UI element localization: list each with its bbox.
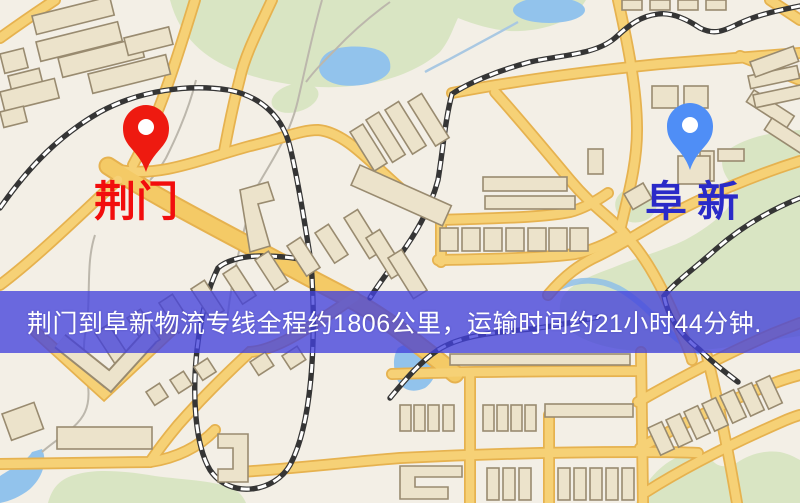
route-info-text: 荆门到阜新物流专线全程约1806公里，运输时间约21小时44分钟. — [27, 304, 762, 340]
route-info-banner: 荆门到阜新物流专线全程约1806公里，运输时间约21小时44分钟. — [0, 291, 800, 353]
origin-label: 荆门 — [94, 178, 178, 225]
map-canvas[interactable]: 荆门 阜新 — [0, 0, 800, 503]
logistics-route-map: 荆门 阜新 荆门到阜新物流专线全程约1806公里，运输时间约21小时44分钟. — [0, 0, 800, 503]
destination-label: 阜新 — [645, 178, 749, 225]
